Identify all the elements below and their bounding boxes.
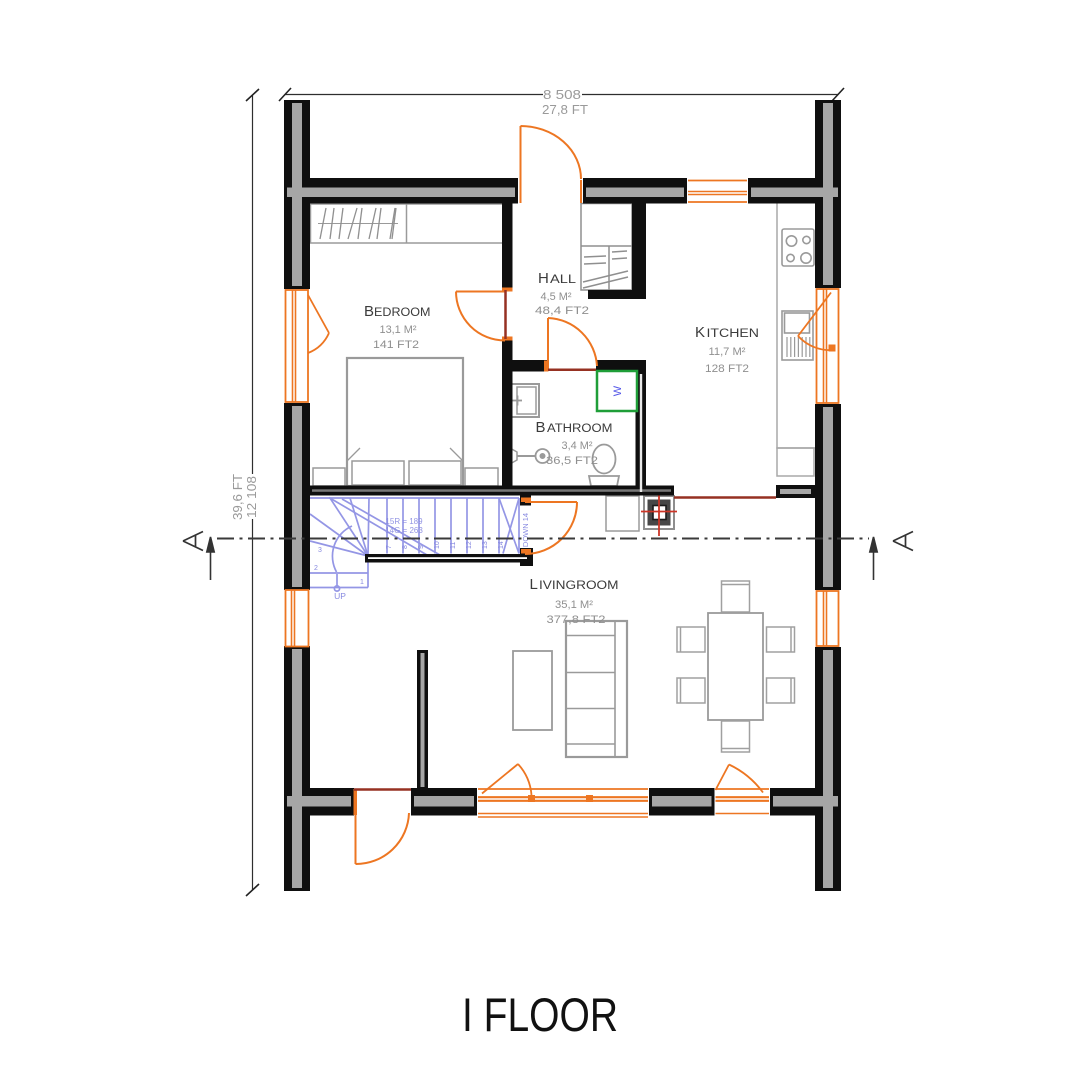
svg-text:13,1 M²: 13,1 M²: [380, 324, 417, 336]
svg-text:EDROOM: EDROOM: [374, 307, 431, 319]
svg-text:ALL: ALL: [550, 274, 577, 286]
svg-text:8: 8: [402, 545, 409, 549]
svg-text:UP: UP: [334, 591, 346, 601]
svg-text:2: 2: [314, 565, 318, 572]
svg-text:K: K: [695, 324, 705, 341]
svg-text:14: 14: [498, 541, 505, 549]
svg-text:8 508: 8 508: [543, 87, 581, 102]
svg-text:9: 9: [418, 545, 425, 549]
svg-text:3,4 M²: 3,4 M²: [562, 440, 593, 452]
svg-text:7: 7: [386, 545, 393, 549]
svg-text:4,5 M²: 4,5 M²: [541, 291, 572, 303]
svg-text:ITCHEN: ITCHEN: [707, 328, 760, 340]
svg-text:377,8 FT2: 377,8 FT2: [547, 614, 606, 626]
svg-text:3: 3: [318, 547, 322, 554]
svg-text:12 108: 12 108: [244, 476, 259, 518]
svg-text:13: 13: [482, 541, 489, 549]
svg-text:L: L: [530, 576, 538, 593]
svg-text:48,4 FT2: 48,4 FT2: [535, 305, 589, 317]
svg-text:B: B: [536, 419, 546, 436]
svg-text:36,5 FT2: 36,5 FT2: [546, 455, 598, 467]
svg-text:W: W: [612, 385, 624, 396]
svg-text:DOWN 14: DOWN 14: [521, 513, 530, 547]
svg-text:27,8 FT: 27,8 FT: [542, 102, 588, 117]
svg-text:15R = 189: 15R = 189: [385, 517, 423, 526]
svg-text:11: 11: [450, 542, 457, 549]
svg-text:14G = 263: 14G = 263: [385, 526, 423, 535]
svg-text:ATHROOM: ATHROOM: [547, 423, 613, 435]
svg-text:B: B: [364, 303, 374, 320]
svg-text:12: 12: [466, 541, 473, 549]
svg-text:141 FT2: 141 FT2: [373, 339, 419, 351]
svg-text:35,1 M²: 35,1 M²: [555, 599, 593, 611]
svg-text:IVINGROOM: IVINGROOM: [539, 580, 619, 592]
svg-text:128 FT2: 128 FT2: [705, 363, 749, 375]
svg-text:10: 10: [434, 541, 441, 549]
svg-text:11,7 M²: 11,7 M²: [709, 346, 746, 358]
svg-text:I FLOOR: I FLOOR: [462, 988, 618, 1041]
svg-text:H: H: [538, 270, 549, 287]
svg-text:39,6 FT: 39,6 FT: [230, 474, 245, 520]
svg-text:1: 1: [360, 579, 364, 586]
